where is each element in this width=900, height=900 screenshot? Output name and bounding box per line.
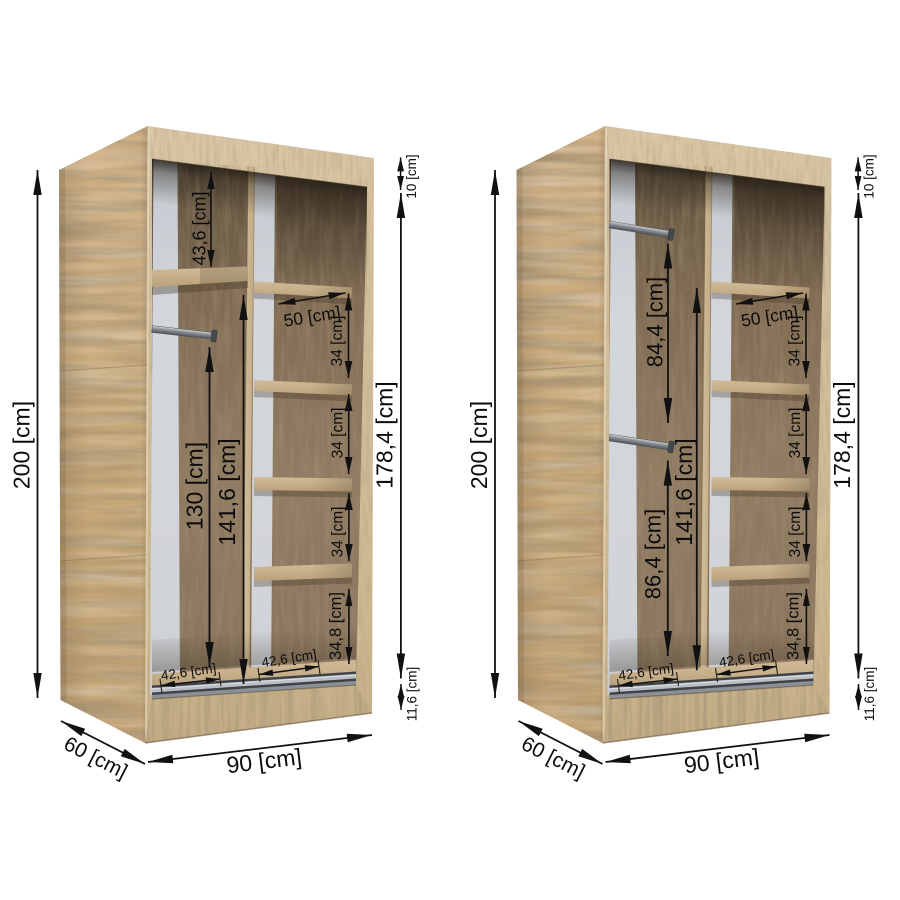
svg-text:10 [cm]: 10 [cm] (862, 154, 877, 198)
svg-text:34 [cm]: 34 [cm] (787, 316, 804, 367)
svg-text:200 [cm]: 200 [cm] (466, 401, 492, 489)
svg-text:34 [cm]: 34 [cm] (787, 507, 804, 558)
svg-text:10 [cm]: 10 [cm] (404, 154, 419, 198)
svg-text:11,6 [cm]: 11,6 [cm] (405, 667, 420, 722)
svg-text:84,4 [cm]: 84,4 [cm] (642, 277, 667, 367)
svg-text:34,8 [cm]: 34,8 [cm] (327, 592, 345, 660)
svg-text:141,6 [cm]: 141,6 [cm] (214, 438, 240, 545)
svg-text:43,6 [cm]: 43,6 [cm] (189, 191, 209, 265)
svg-text:130 [cm]: 130 [cm] (181, 442, 207, 530)
svg-text:34 [cm]: 34 [cm] (787, 408, 804, 459)
svg-text:34 [cm]: 34 [cm] (329, 507, 346, 558)
svg-text:34,8 [cm]: 34,8 [cm] (784, 592, 802, 660)
svg-text:200 [cm]: 200 [cm] (8, 401, 34, 489)
svg-text:178,4 [cm]: 178,4 [cm] (371, 381, 397, 488)
svg-text:141,6 [cm]: 141,6 [cm] (671, 438, 697, 545)
svg-text:34 [cm]: 34 [cm] (329, 316, 346, 367)
svg-text:11,6 [cm]: 11,6 [cm] (862, 667, 877, 722)
svg-text:86,4 [cm]: 86,4 [cm] (640, 509, 665, 599)
svg-text:178,4 [cm]: 178,4 [cm] (829, 381, 855, 488)
svg-text:34 [cm]: 34 [cm] (329, 408, 346, 459)
